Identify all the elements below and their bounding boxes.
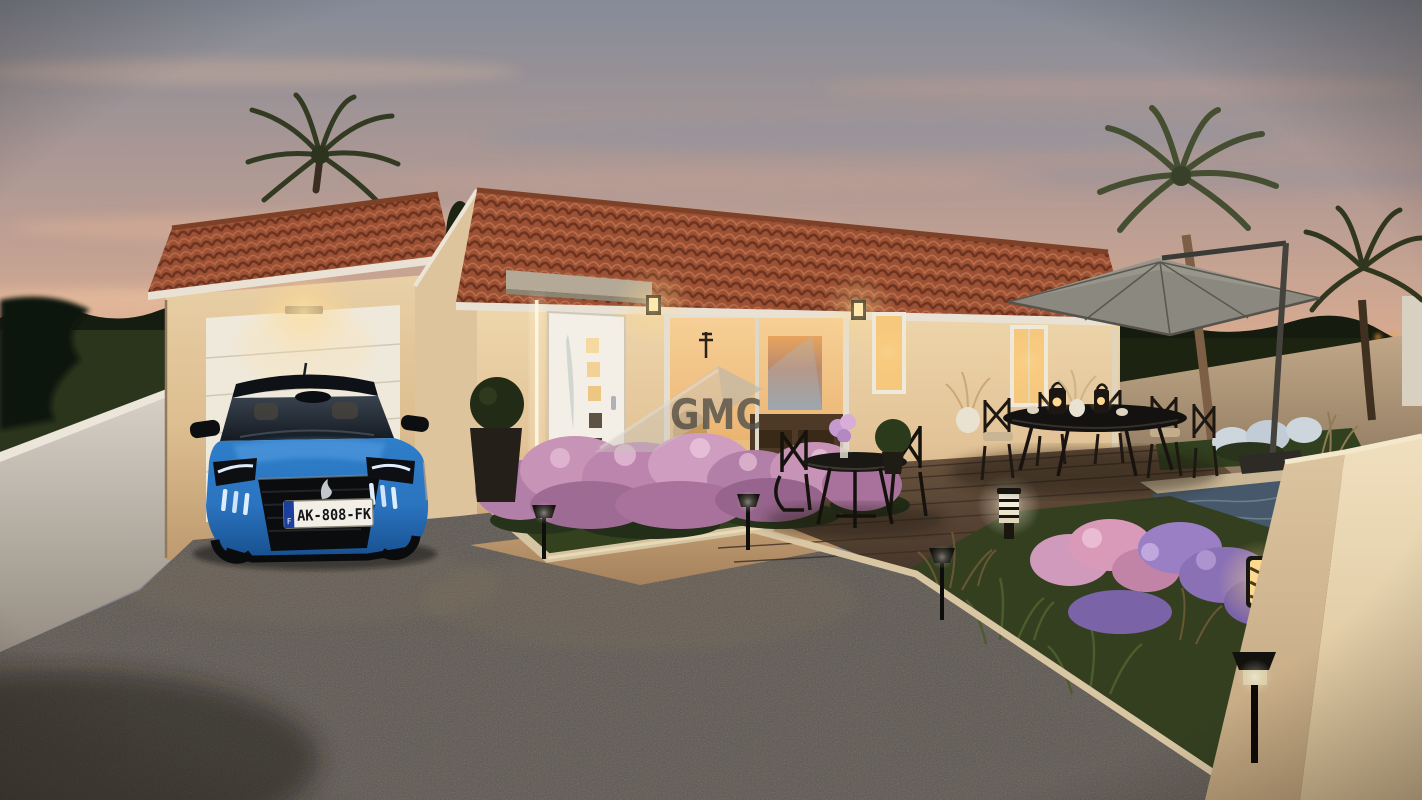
vignette-overlay xyxy=(0,0,1422,800)
rendering-canvas: F AK-808-FK GMC xyxy=(0,0,1422,800)
villa-render: F AK-808-FK GMC xyxy=(0,0,1422,800)
